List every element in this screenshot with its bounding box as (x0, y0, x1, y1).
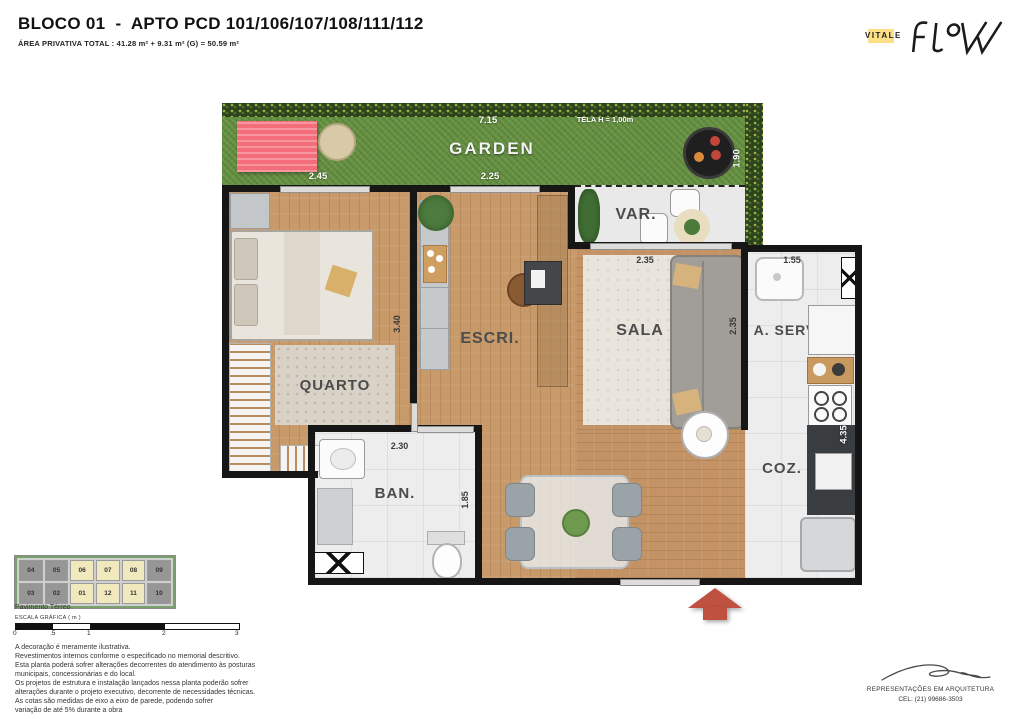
hedge-right (745, 103, 763, 248)
escritorio-label: ESCRI. (450, 329, 530, 349)
entrance-arrow-icon (703, 607, 727, 620)
dim-sala-width: 2.35 (615, 255, 675, 265)
area-subtitle: ÁREA PRIVATIVA TOTAL : 41.28 m² + 9.31 m… (18, 39, 239, 48)
sliding-door-garden (450, 186, 540, 193)
wall (475, 425, 482, 585)
shower-bench (317, 488, 353, 545)
sofa-pillow (672, 263, 701, 289)
dim-quarto-width: 2.45 (288, 171, 348, 182)
sofa-seam (702, 261, 704, 419)
cup-icon (428, 266, 435, 273)
bed-pillow (234, 284, 258, 326)
burner-icon (814, 407, 829, 422)
dim-coz-depth: 4.35 (839, 420, 850, 450)
desk-paper (531, 270, 545, 288)
disclaimer-text: A decoração é meramente ilustrativa. Rev… (15, 643, 255, 715)
basin-icon (330, 448, 356, 470)
vitale-logo: VITALE (862, 29, 905, 42)
garden-table (318, 123, 356, 161)
key-plan-unit-highlighted: 11 (122, 583, 146, 604)
bbq-grill (683, 127, 735, 179)
scale-tick: 2 (162, 630, 166, 637)
sofa (670, 255, 745, 429)
wall (308, 432, 315, 585)
coffee-tray (423, 245, 447, 283)
bedside-cabinet (230, 193, 270, 229)
key-plan: 04 05 06 07 08 09 03 02 01 12 11 10 (15, 556, 175, 608)
varanda-table (674, 209, 710, 245)
disclaimer-line: alterações durante o projeto executivo, … (15, 688, 255, 697)
dim-sala-depth: 2.35 (728, 311, 738, 341)
wall (410, 185, 417, 403)
disclaimer-line: Revestimentos internos conforme o especi… (15, 652, 255, 661)
wall (568, 185, 575, 249)
vitale-logo-text: VITALE (865, 31, 902, 40)
key-plan-unit: 02 (45, 583, 69, 604)
firm-phone: CEL: (21) 99686-3503 (848, 696, 1013, 703)
plate-icon (696, 426, 712, 442)
wall (222, 471, 318, 478)
shaft-hatch-ban (313, 552, 364, 574)
varanda-label: VAR. (600, 205, 672, 225)
dim-escri-width: 2.25 (460, 171, 520, 182)
key-plan-unit-highlighted: 08 (122, 560, 146, 581)
wood-shelf (807, 357, 854, 384)
bbq-food-icon (694, 152, 704, 162)
counter-cabinet (808, 305, 857, 355)
burner-icon (814, 391, 829, 406)
bathroom-sink (319, 439, 365, 479)
quarto-rug: QUARTO (275, 345, 395, 425)
varanda-plant (578, 189, 600, 243)
kitchen-sink (815, 453, 852, 490)
scale-tick: .5 (50, 630, 55, 637)
scale-segment (165, 624, 239, 629)
picnic-blanket (237, 121, 317, 172)
escritorio-plant (418, 195, 454, 231)
cup-icon (427, 250, 434, 257)
key-plan-unit: 04 (19, 560, 43, 581)
scale-ticks: 0 .5 1 2 3 (13, 630, 243, 639)
accent-pillow (325, 265, 358, 298)
scale-segment (90, 624, 165, 629)
flow-logo-icon (903, 16, 1003, 58)
bbq-food-icon (711, 150, 721, 160)
scale-tick: 3 (235, 630, 239, 637)
scale-tick: 0 (13, 630, 17, 637)
door-quarto (411, 403, 418, 432)
key-plan-unit-highlighted: 06 (70, 560, 94, 581)
floor-plan: GARDEN 7.15 TELA H = 1,00m 1.90 2.45 2.2… (222, 103, 863, 585)
entrance-door (620, 579, 700, 586)
wall (222, 185, 229, 478)
fridge (800, 517, 856, 572)
key-plan-unit: 10 (147, 583, 171, 604)
bed-runner (284, 232, 320, 335)
dining-chair (612, 527, 642, 561)
disclaimer-line: A decoração é meramente ilustrativa. (15, 643, 255, 652)
dim-ban-width: 2.30 (372, 441, 427, 451)
wall (741, 245, 748, 430)
toilet-bowl (432, 543, 462, 579)
scale-segment (53, 624, 90, 629)
garden-label: GARDEN (382, 139, 602, 159)
entrance-arrow-icon (688, 588, 742, 608)
disclaimer-line: As cotas são medidas de eixo a eixo de p… (15, 697, 255, 706)
sliding-door-varanda (590, 243, 732, 250)
scale-bar (15, 623, 240, 630)
page-title: BLOCO 01 - APTO PCD 101/106/107/108/111/… (18, 14, 424, 34)
cup-icon (436, 255, 443, 262)
firm-name: REPRESENTAÇÕES EM ARQUITETURA (848, 686, 1013, 693)
disclaimer-line: Esta planta poderá sofrer alterações dec… (15, 661, 255, 670)
floor-level-label: Pavimento Térreo (15, 604, 71, 611)
disclaimer-line: Os projetos de estrutura e instalação la… (15, 679, 255, 688)
banheiro-label: BAN. (360, 483, 430, 503)
key-plan-unit: 05 (45, 560, 69, 581)
bed (230, 230, 374, 341)
dining-chair (612, 483, 642, 517)
dim-ban-depth: 1.85 (460, 485, 470, 515)
key-plan-unit: 09 (147, 560, 171, 581)
wall (748, 245, 862, 252)
bed-pillow (234, 238, 258, 280)
table-plant-icon (684, 219, 700, 235)
wall (308, 578, 862, 585)
desk (524, 261, 562, 305)
disclaimer-line: municipais, concessionárias e do local. (15, 670, 255, 679)
cozinha-label: COZ. (754, 459, 810, 477)
plate-icon (813, 363, 826, 376)
door-banheiro (417, 426, 474, 433)
scale-tick: 1 (87, 630, 91, 637)
key-plan-unit-highlighted: 12 (96, 583, 120, 604)
drain-icon (773, 273, 781, 281)
disclaimer-line: variação de até 5% durante a obra (15, 706, 255, 715)
wardrobe (229, 343, 271, 472)
quarto-label: QUARTO (300, 377, 371, 394)
scale-segment (16, 624, 53, 629)
dim-quarto-depth: 3.40 (392, 309, 402, 339)
dim-garden-width: 7.15 (458, 115, 518, 126)
wall (855, 245, 862, 585)
key-plan-unit-highlighted: 07 (96, 560, 120, 581)
dim-tela-note: TELA H = 1,00m (540, 115, 670, 124)
dining-chair (505, 527, 535, 561)
bowl-icon (832, 363, 845, 376)
scale-label: ESCALA GRÁFICA ( m ) (15, 615, 81, 621)
dining-chair (505, 483, 535, 517)
flow-logo (903, 16, 1003, 63)
dim-garden-depth: 1.90 (732, 144, 743, 174)
sliding-door-garden (280, 186, 370, 193)
key-plan-unit: 03 (19, 583, 43, 604)
dim-aserv-width: 1.55 (767, 255, 817, 265)
burner-icon (832, 391, 847, 406)
key-plan-unit-highlighted: 01 (70, 583, 94, 604)
sala-label: SALA (605, 321, 675, 341)
coffee-table (681, 411, 729, 459)
bbq-food-icon (710, 136, 720, 146)
centerpiece-icon (562, 509, 590, 537)
